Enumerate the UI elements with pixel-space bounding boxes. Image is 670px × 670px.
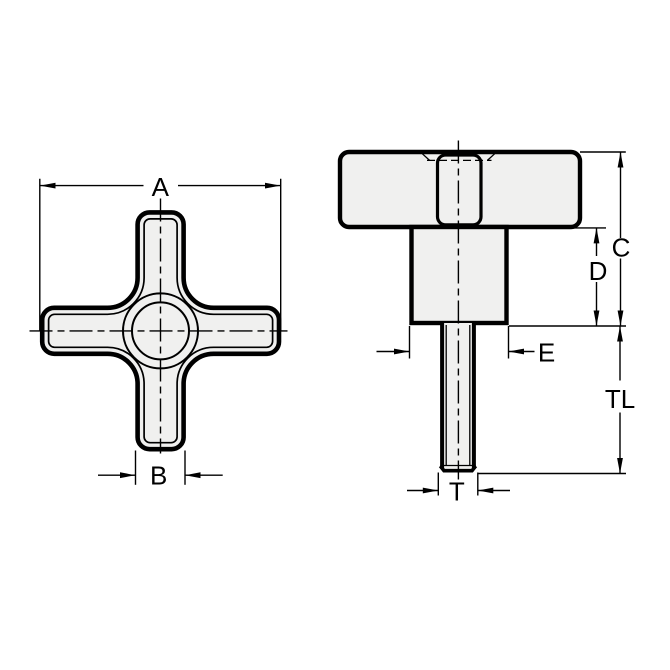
svg-text:B: B [150, 461, 167, 491]
svg-text:D: D [589, 256, 608, 286]
svg-text:E: E [538, 338, 555, 368]
svg-text:A: A [152, 172, 170, 202]
svg-text:TL: TL [605, 384, 635, 414]
svg-text:T: T [449, 477, 465, 507]
svg-text:C: C [612, 233, 631, 263]
